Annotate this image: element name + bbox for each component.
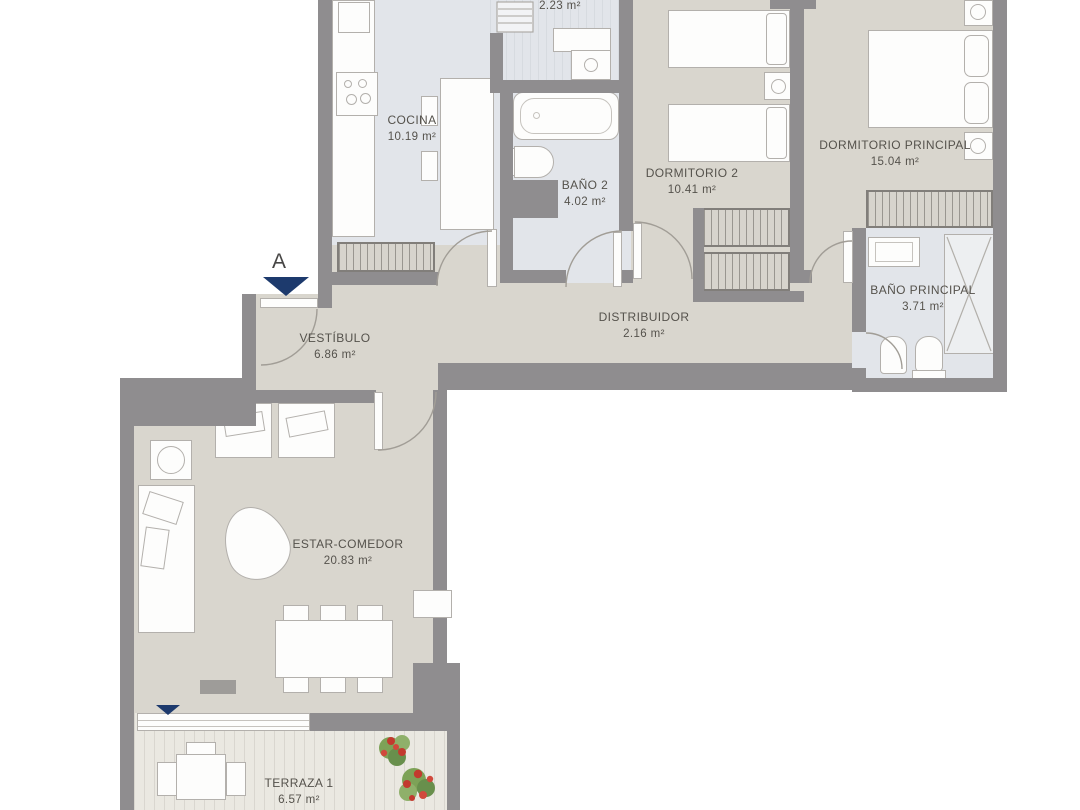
- room-name: TERRAZA 1: [232, 775, 366, 792]
- wall: [433, 390, 447, 663]
- sink-basin: [875, 242, 913, 262]
- wall: [256, 390, 376, 403]
- wardrobe-dormitorio2-upper: [702, 208, 790, 247]
- section-marker-arrow-icon: [263, 277, 309, 296]
- room-area: 20.83 m²: [266, 553, 430, 569]
- ac-unit: [200, 680, 236, 694]
- door-leaf: [843, 231, 853, 283]
- room-area: 10.41 m²: [617, 182, 767, 198]
- room-area: 6.57 m²: [232, 792, 366, 808]
- dining-chair: [283, 605, 309, 621]
- wall: [693, 291, 804, 302]
- room-label-distribuidor: DISTRIBUIDOR 2.16 m²: [572, 309, 716, 342]
- wall: [502, 80, 633, 93]
- toilet: [915, 336, 943, 372]
- wall: [852, 228, 866, 332]
- dining-chair: [320, 677, 346, 693]
- dining-chair: [357, 677, 383, 693]
- wall: [693, 208, 704, 302]
- wall: [622, 270, 633, 283]
- terrace-chair: [157, 762, 177, 796]
- room-name: VESTÍBULO: [268, 330, 402, 347]
- burner-icon: [346, 94, 357, 105]
- room-name: ESTAR-COMEDOR: [266, 536, 430, 553]
- wall: [447, 713, 460, 810]
- room-label-dormitorio2: DORMITORIO 2 10.41 m²: [617, 165, 767, 198]
- room-label-bano-principal: BAÑO PRINCIPAL 3.71 m²: [845, 282, 1001, 315]
- dining-chair: [320, 605, 346, 621]
- room-area: 2.23 m²: [512, 0, 608, 14]
- door-leaf: [487, 229, 497, 287]
- stove: [336, 72, 378, 116]
- room-label-cocina: COCINA 10.19 m²: [347, 112, 477, 145]
- wall: [242, 294, 256, 390]
- washing-machine-door-icon: [584, 58, 598, 72]
- wall: [332, 272, 438, 285]
- room-name: BAÑO PRINCIPAL: [845, 282, 1001, 299]
- door-leaf: [613, 232, 622, 287]
- room-label-terraza1: TERRAZA 1 6.57 m²: [232, 775, 366, 808]
- burner-icon: [344, 80, 352, 88]
- door-leaf: [374, 392, 383, 450]
- section-marker-letter: A: [272, 250, 287, 274]
- pillow: [964, 82, 989, 124]
- wall: [513, 270, 566, 283]
- floor-plan: A 2.23 m² COCINA 10.19 m² BAÑO 2 4.02 m²…: [0, 0, 1080, 810]
- room-name: DORMITORIO PRINCIPAL: [793, 137, 997, 154]
- kitchen-chair: [421, 151, 438, 181]
- pillow: [766, 13, 787, 65]
- room-area: 3.71 m²: [845, 299, 1001, 315]
- pillow: [964, 35, 989, 77]
- kitchen-table: [440, 78, 494, 230]
- wall: [770, 0, 816, 9]
- bathtub-drain-icon: [533, 112, 540, 119]
- kitchen-cabinet-hatched: [337, 242, 435, 272]
- door-leaf: [260, 298, 318, 308]
- wardrobe-dormitorio2-lower: [702, 252, 790, 291]
- room-name: DISTRIBUIDOR: [572, 309, 716, 326]
- lamp-icon: [157, 446, 185, 474]
- terrace-door-arrow-icon: [156, 705, 180, 715]
- window: [413, 590, 452, 618]
- wall: [310, 713, 447, 731]
- room-area: 2.16 m²: [572, 326, 716, 342]
- lamp-icon: [970, 4, 986, 20]
- sliding-glass-door: [137, 713, 310, 731]
- lamp-icon: [771, 79, 786, 94]
- wall: [120, 378, 134, 810]
- fridge: [338, 2, 370, 33]
- laundry-counter: [553, 28, 611, 52]
- burner-icon: [358, 79, 367, 88]
- terrace-chair: [186, 742, 216, 755]
- room-label-lavadero: 2.23 m²: [512, 0, 608, 14]
- room-label-estar-comedor: ESTAR-COMEDOR 20.83 m²: [266, 536, 430, 569]
- room-area: 15.04 m²: [793, 154, 997, 170]
- pillow: [766, 107, 787, 159]
- wall: [318, 0, 332, 308]
- terrace-table: [176, 754, 226, 800]
- wall: [438, 363, 852, 390]
- dining-chair: [357, 605, 383, 621]
- dining-table: [275, 620, 393, 678]
- wall: [790, 270, 812, 283]
- wall: [120, 378, 256, 426]
- wardrobe-dormitorio-principal: [866, 190, 993, 228]
- door-leaf: [633, 223, 642, 279]
- toilet: [514, 146, 554, 178]
- room-label-vestibulo: VESTÍBULO 6.86 m²: [268, 330, 402, 363]
- room-area: 6.86 m²: [268, 347, 402, 363]
- room-name: COCINA: [347, 112, 477, 129]
- bidet: [880, 336, 907, 374]
- room-name: DORMITORIO 2: [617, 165, 767, 182]
- wall: [993, 0, 1007, 392]
- dining-chair: [283, 677, 309, 693]
- room-area: 10.19 m²: [347, 129, 477, 145]
- wall: [413, 663, 460, 715]
- wall: [852, 378, 1007, 392]
- burner-icon: [360, 93, 371, 104]
- room-label-dormitorio-principal: DORMITORIO PRINCIPAL 15.04 m²: [793, 137, 997, 170]
